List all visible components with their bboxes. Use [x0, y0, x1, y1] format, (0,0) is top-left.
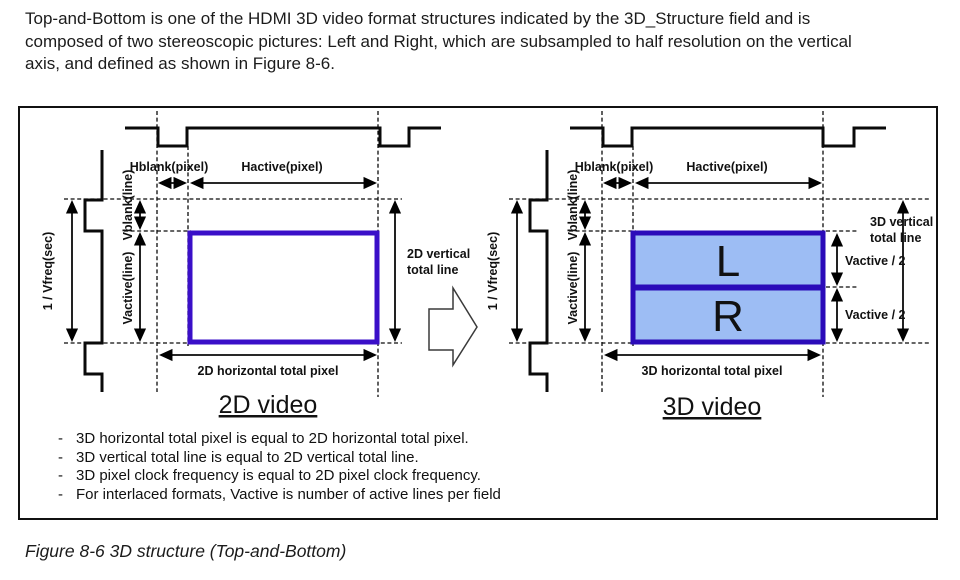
label-vtotal-3d-line1: 3D vertical	[870, 215, 933, 229]
figure-frame: Hblank(pixel) Hactive(pixel) Vblank(line…	[18, 106, 938, 520]
note-bullet: -	[54, 486, 76, 505]
figure-caption: Figure 8-6 3D structure (Top-and-Bottom)	[25, 541, 346, 562]
note-text: For interlaced formats, Vactive is numbe…	[76, 486, 501, 505]
title-2d-video: 2D video	[219, 391, 318, 419]
vsync-waveform-2d	[85, 150, 102, 392]
label-htotal-2d: 2D horizontal total pixel	[198, 364, 339, 378]
label-hactive-3d: Hactive(pixel)	[686, 160, 767, 174]
note-item: - 3D vertical total line is equal to 2D …	[54, 449, 754, 468]
label-vblank-2d: Vblank(line)	[121, 170, 135, 241]
note-bullet: -	[54, 467, 76, 486]
intro-paragraph: Top-and-Bottom is one of the HDMI 3D vid…	[25, 8, 865, 76]
note-text: 3D vertical total line is equal to 2D ve…	[76, 449, 419, 468]
label-vactive-3d: Vactive(line)	[566, 252, 580, 325]
label-hblank-3d: Hblank(pixel)	[575, 160, 654, 174]
label-htotal-3d: 3D horizontal total pixel	[642, 364, 783, 378]
diagram-2d: Hblank(pixel) Hactive(pixel) Vblank(line…	[41, 111, 470, 419]
label-vfreq-3d: 1 / Vfreq(sec)	[486, 232, 500, 311]
title-3d-video: 3D video	[663, 393, 762, 421]
figure-notes: - 3D horizontal total pixel is equal to …	[54, 430, 754, 504]
label-hactive-2d: Hactive(pixel)	[241, 160, 322, 174]
label-right-picture: R	[712, 292, 744, 341]
note-text: 3D horizontal total pixel is equal to 2D…	[76, 430, 469, 449]
note-bullet: -	[54, 430, 76, 449]
label-vactive-half-top: Vactive / 2	[845, 254, 906, 268]
label-left-picture: L	[716, 237, 740, 286]
active-area-2d	[190, 233, 377, 342]
diagram-3d: Hblank(pixel) Hactive(pixel) Vblank(line…	[486, 111, 933, 421]
note-item: - For interlaced formats, Vactive is num…	[54, 486, 754, 505]
hsync-waveform-3d	[570, 128, 886, 146]
label-vtotal-3d-line2: total line	[870, 231, 921, 245]
label-vactive-half-bottom: Vactive / 2	[845, 308, 906, 322]
label-vtotal-2d-line2: total line	[407, 263, 458, 277]
label-vblank-3d: Vblank(line)	[566, 170, 580, 241]
label-vactive-2d: Vactive(line)	[121, 252, 135, 325]
hsync-waveform-2d	[125, 128, 441, 146]
document-page: Top-and-Bottom is one of the HDMI 3D vid…	[0, 0, 960, 580]
transform-arrow-icon	[429, 288, 477, 365]
note-bullet: -	[54, 449, 76, 468]
note-item: - 3D pixel clock frequency is equal to 2…	[54, 467, 754, 486]
vsync-waveform-3d	[530, 150, 547, 392]
label-vtotal-2d-line1: 2D vertical	[407, 247, 470, 261]
label-vfreq-2d: 1 / Vfreq(sec)	[41, 232, 55, 311]
note-item: - 3D horizontal total pixel is equal to …	[54, 430, 754, 449]
label-hblank-2d: Hblank(pixel)	[130, 160, 209, 174]
note-text: 3D pixel clock frequency is equal to 2D …	[76, 467, 481, 486]
